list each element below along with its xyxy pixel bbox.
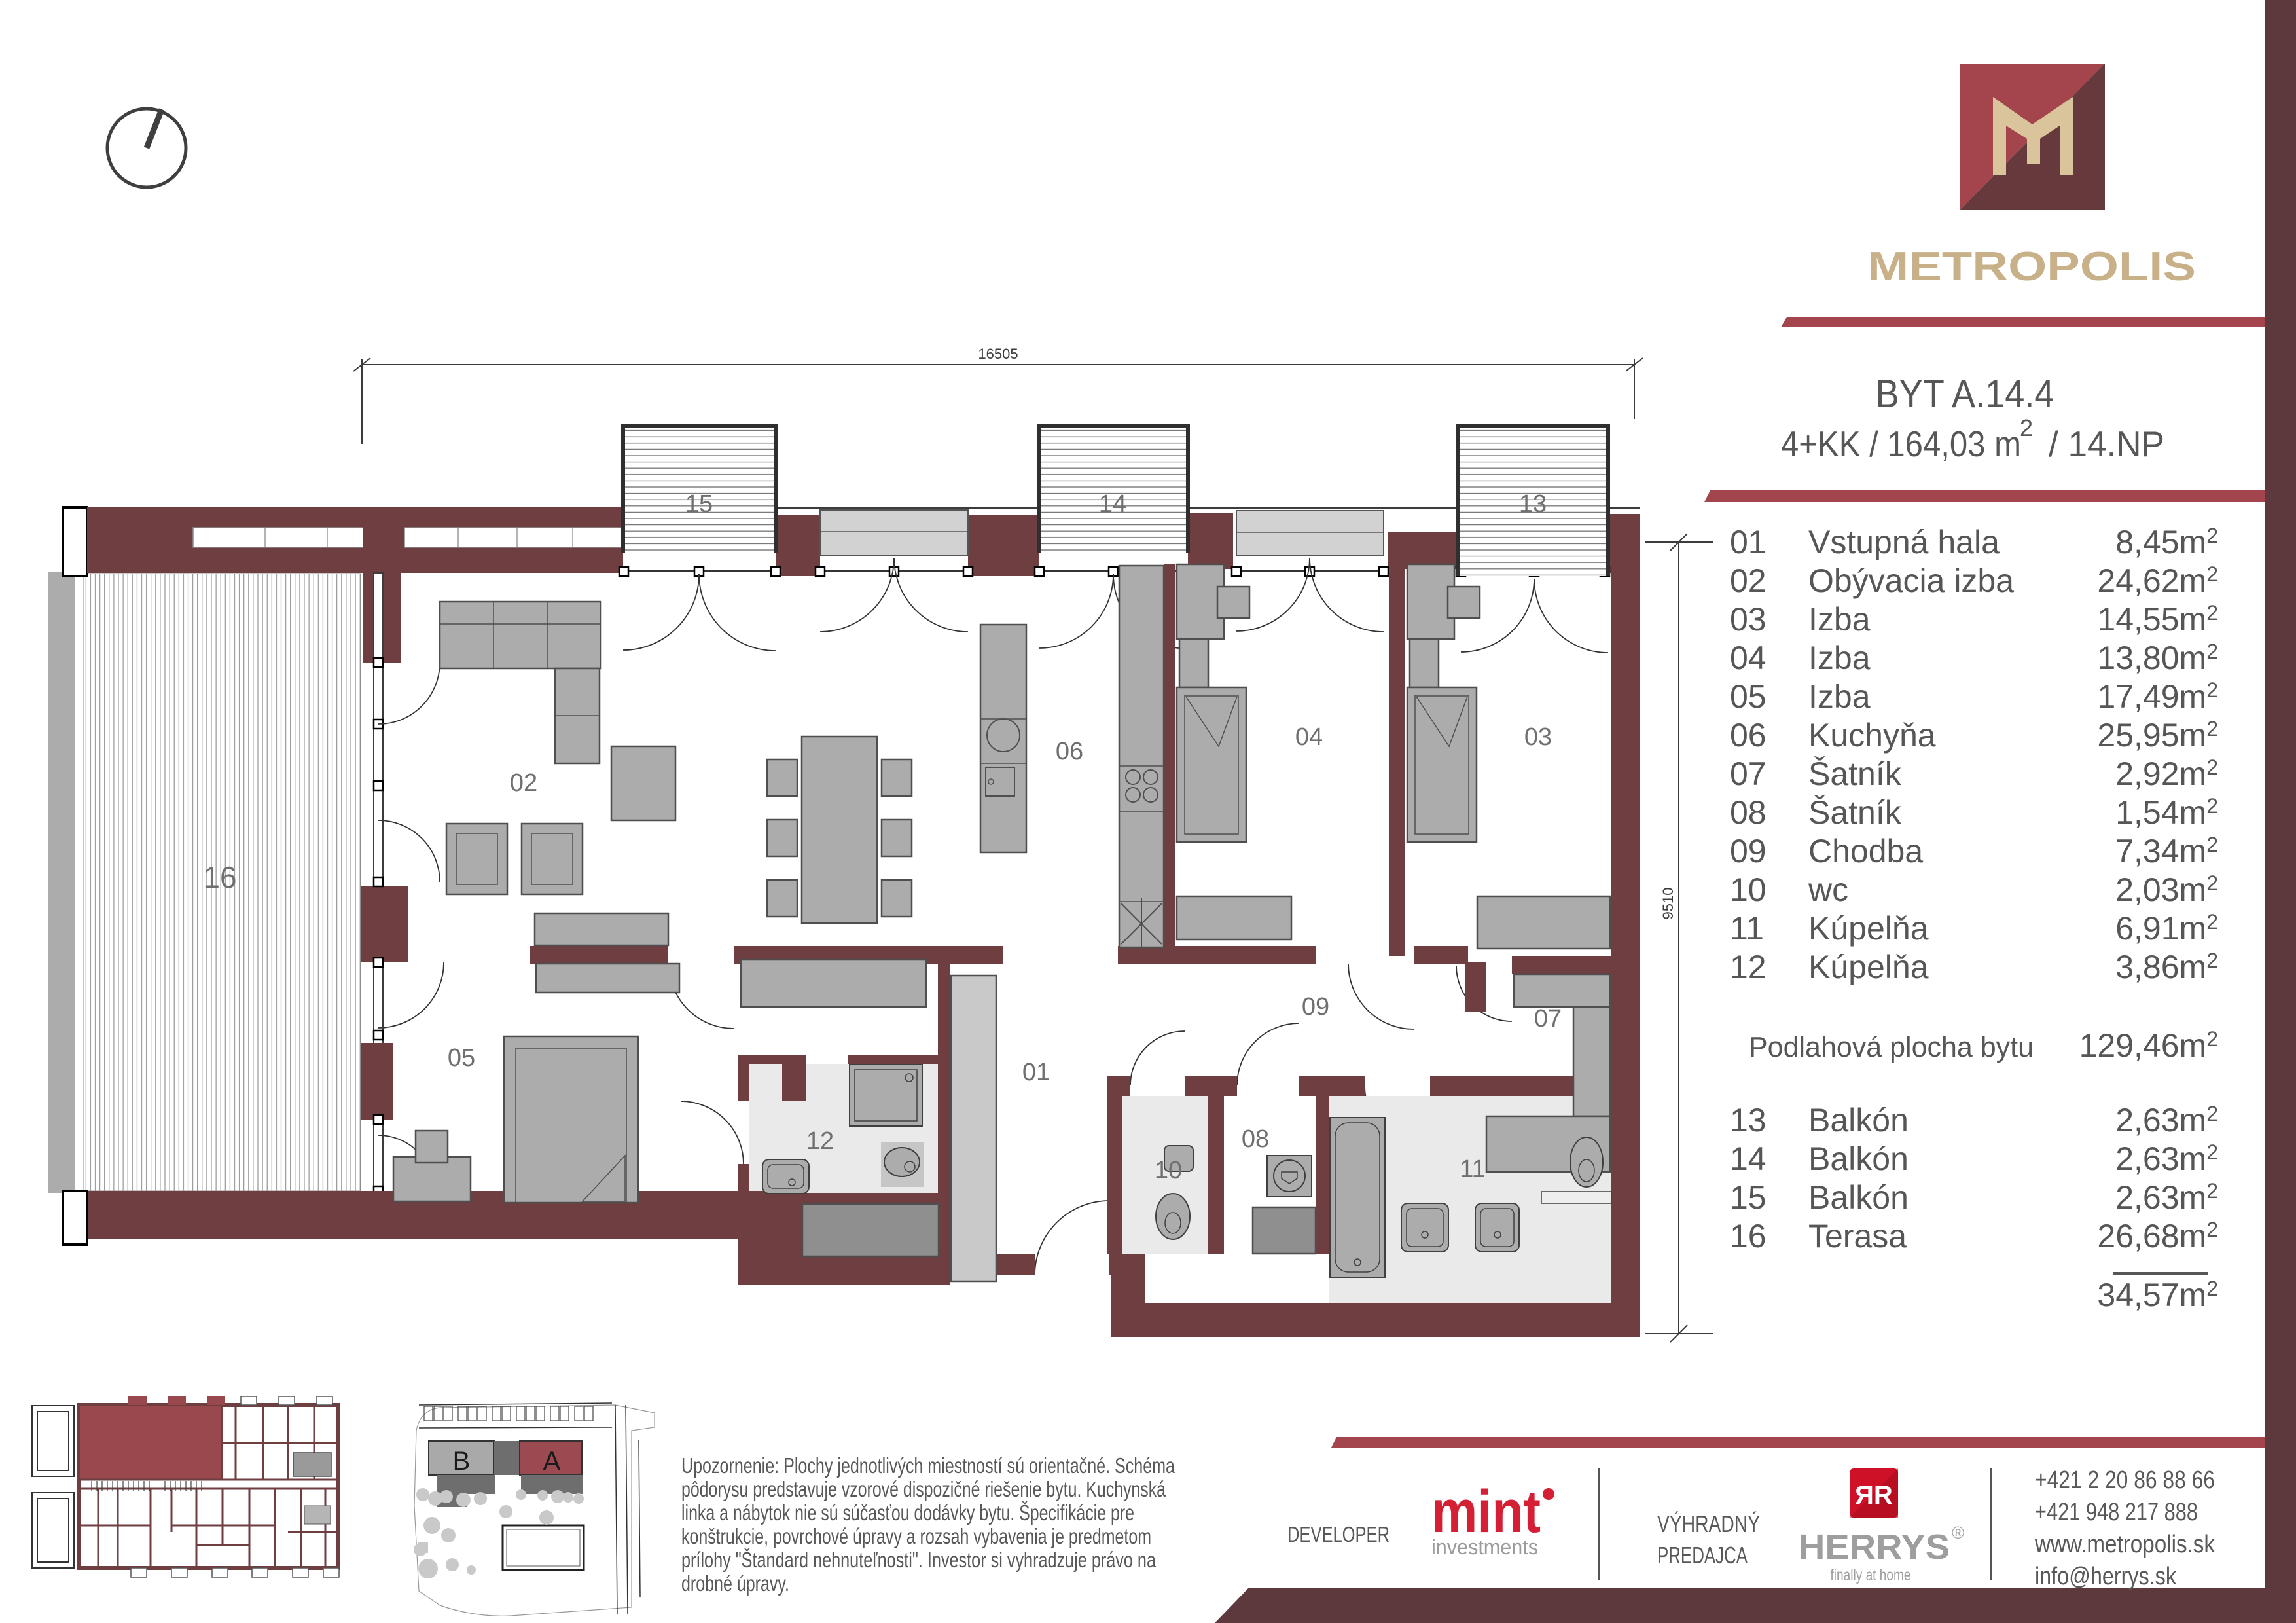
svg-text:B: B bbox=[453, 1447, 471, 1476]
svg-text:DEVELOPER: DEVELOPER bbox=[1287, 1522, 1390, 1546]
svg-text:2,63m2: 2,63m2 bbox=[2115, 1140, 2218, 1177]
svg-text:11: 11 bbox=[1460, 1156, 1485, 1183]
svg-text:01: 01 bbox=[1730, 524, 1767, 560]
svg-text:06: 06 bbox=[1730, 717, 1767, 754]
svg-text:Šatník: Šatník bbox=[1808, 756, 1902, 792]
svg-text:+421 2 20 86 88 66: +421 2 20 86 88 66 bbox=[2035, 1467, 2215, 1494]
svg-text:VÝHRADNÝ: VÝHRADNÝ bbox=[1657, 1510, 1760, 1537]
svg-text:BYT A.14.4: BYT A.14.4 bbox=[1876, 372, 2054, 416]
svg-text:09: 09 bbox=[1730, 833, 1767, 869]
svg-text:Šatník: Šatník bbox=[1808, 794, 1902, 831]
svg-text:01: 01 bbox=[1022, 1059, 1050, 1086]
svg-text:Izba: Izba bbox=[1808, 601, 1871, 638]
svg-text:10: 10 bbox=[1155, 1157, 1182, 1184]
svg-text:8,45m2: 8,45m2 bbox=[2115, 524, 2218, 560]
svg-text:7,34m2: 7,34m2 bbox=[2115, 833, 2218, 869]
svg-text:07: 07 bbox=[1534, 1005, 1562, 1032]
svg-text:13: 13 bbox=[1519, 490, 1547, 518]
svg-text:prílohy "Štandard nehnuteľnost: prílohy "Štandard nehnuteľnosti". Invest… bbox=[681, 1548, 1156, 1572]
svg-text:Podlahová plocha bytu: Podlahová plocha bytu bbox=[1749, 1031, 2034, 1063]
svg-text:12: 12 bbox=[806, 1127, 834, 1155]
svg-text:34,57m2: 34,57m2 bbox=[2097, 1277, 2218, 1313]
svg-text:16: 16 bbox=[1730, 1218, 1767, 1254]
svg-text:2,63m2: 2,63m2 bbox=[2115, 1102, 2218, 1139]
svg-text:05: 05 bbox=[448, 1044, 475, 1072]
svg-text:Izba: Izba bbox=[1808, 678, 1871, 715]
svg-text:Kúpelňa: Kúpelňa bbox=[1808, 910, 1929, 947]
svg-text:17,49m2: 17,49m2 bbox=[2097, 678, 2218, 715]
svg-text:07: 07 bbox=[1730, 756, 1767, 792]
svg-text:6,91m2: 6,91m2 bbox=[2115, 910, 2218, 947]
svg-text:09: 09 bbox=[1302, 993, 1329, 1021]
svg-text:14: 14 bbox=[1730, 1140, 1767, 1177]
svg-text:METROPOLIS: METROPOLIS bbox=[1867, 244, 2196, 289]
svg-text:13: 13 bbox=[1730, 1102, 1767, 1139]
svg-text:16: 16 bbox=[203, 860, 236, 894]
svg-text:Balkón: Balkón bbox=[1808, 1140, 1909, 1177]
svg-text:linka a nábytok nie sú súčasťo: linka a nábytok nie sú súčasťou dodávky … bbox=[681, 1501, 1134, 1525]
svg-text:3,86m2: 3,86m2 bbox=[2115, 949, 2218, 985]
svg-text:15: 15 bbox=[1730, 1179, 1767, 1216]
svg-text:16505: 16505 bbox=[978, 346, 1018, 362]
svg-text:2,63m2: 2,63m2 bbox=[2115, 1179, 2218, 1216]
svg-text:PREDAJCA: PREDAJCA bbox=[1657, 1542, 1748, 1569]
svg-text:04: 04 bbox=[1295, 723, 1323, 751]
svg-text:Upozornenie: Plochy jednotlivý: Upozornenie: Plochy jednotlivých miestno… bbox=[681, 1453, 1175, 1478]
svg-text:14: 14 bbox=[1099, 490, 1126, 518]
svg-text:konštrukcie, povrchové úpravy: konštrukcie, povrchové úpravy a rozsah v… bbox=[681, 1524, 1151, 1548]
svg-text:Terasa: Terasa bbox=[1808, 1218, 1907, 1254]
svg-text:25,95m2: 25,95m2 bbox=[2097, 717, 2218, 754]
svg-text:A: A bbox=[543, 1447, 561, 1476]
svg-text:finally at home: finally at home bbox=[1831, 1566, 1911, 1584]
svg-text:wc: wc bbox=[1808, 871, 1848, 908]
svg-text:Chodba: Chodba bbox=[1808, 833, 1923, 869]
svg-text:15: 15 bbox=[685, 490, 713, 518]
svg-text:Vstupná hala: Vstupná hala bbox=[1808, 524, 2000, 560]
svg-text:02: 02 bbox=[1730, 562, 1767, 599]
svg-text:14,55m2: 14,55m2 bbox=[2097, 601, 2218, 638]
svg-text:9510: 9510 bbox=[1660, 888, 1676, 920]
svg-text:05: 05 bbox=[1730, 678, 1767, 715]
svg-text:Izba: Izba bbox=[1808, 640, 1871, 676]
svg-text:2,03m2: 2,03m2 bbox=[2115, 871, 2218, 908]
svg-text:10: 10 bbox=[1730, 871, 1767, 908]
svg-text:Balkón: Balkón bbox=[1808, 1102, 1909, 1139]
svg-text:02: 02 bbox=[510, 769, 537, 797]
svg-text:24,62m2: 24,62m2 bbox=[2097, 562, 2218, 599]
svg-text:Obývacia izba: Obývacia izba bbox=[1808, 562, 2014, 599]
svg-text:Kuchyňa: Kuchyňa bbox=[1808, 717, 1936, 754]
svg-text:4+KK / 164,03 m: 4+KK / 164,03 m bbox=[1781, 424, 2021, 464]
svg-text:info@herrys.sk: info@herrys.sk bbox=[2035, 1563, 2177, 1590]
svg-text:2,92m2: 2,92m2 bbox=[2115, 756, 2218, 792]
svg-text:investments: investments bbox=[1431, 1535, 1538, 1559]
svg-text:26,68m2: 26,68m2 bbox=[2097, 1218, 2218, 1254]
svg-text:06: 06 bbox=[1056, 738, 1083, 765]
svg-text:129,46m2: 129,46m2 bbox=[2079, 1027, 2218, 1064]
svg-text:/ 14.NP: / 14.NP bbox=[2049, 424, 2164, 464]
svg-text:08: 08 bbox=[1730, 794, 1767, 831]
svg-text:1,54m2: 1,54m2 bbox=[2115, 794, 2218, 831]
svg-text:2: 2 bbox=[2020, 414, 2033, 441]
svg-text:Kúpelňa: Kúpelňa bbox=[1808, 949, 1929, 985]
svg-text:04: 04 bbox=[1730, 640, 1767, 676]
svg-text:®: ® bbox=[1952, 1523, 1964, 1542]
svg-text:11: 11 bbox=[1730, 910, 1764, 947]
svg-text:08: 08 bbox=[1242, 1125, 1269, 1153]
svg-text:www.metropolis.sk: www.metropolis.sk bbox=[2034, 1531, 2215, 1558]
svg-text:+421 948 217 888: +421 948 217 888 bbox=[2035, 1499, 2198, 1526]
svg-text:ЯR: ЯR bbox=[1855, 1481, 1893, 1510]
svg-text:03: 03 bbox=[1730, 601, 1767, 638]
svg-text:12: 12 bbox=[1730, 949, 1767, 985]
svg-text:13,80m2: 13,80m2 bbox=[2097, 640, 2218, 676]
svg-text:pôdorysu predstavuje vzorové d: pôdorysu predstavuje vzorové dispozičné … bbox=[681, 1477, 1166, 1501]
svg-text:03: 03 bbox=[1524, 723, 1552, 751]
svg-text:Balkón: Balkón bbox=[1808, 1179, 1909, 1216]
svg-text:drobné úpravy.: drobné úpravy. bbox=[681, 1571, 789, 1596]
svg-text:HERRYS: HERRYS bbox=[1799, 1527, 1950, 1567]
